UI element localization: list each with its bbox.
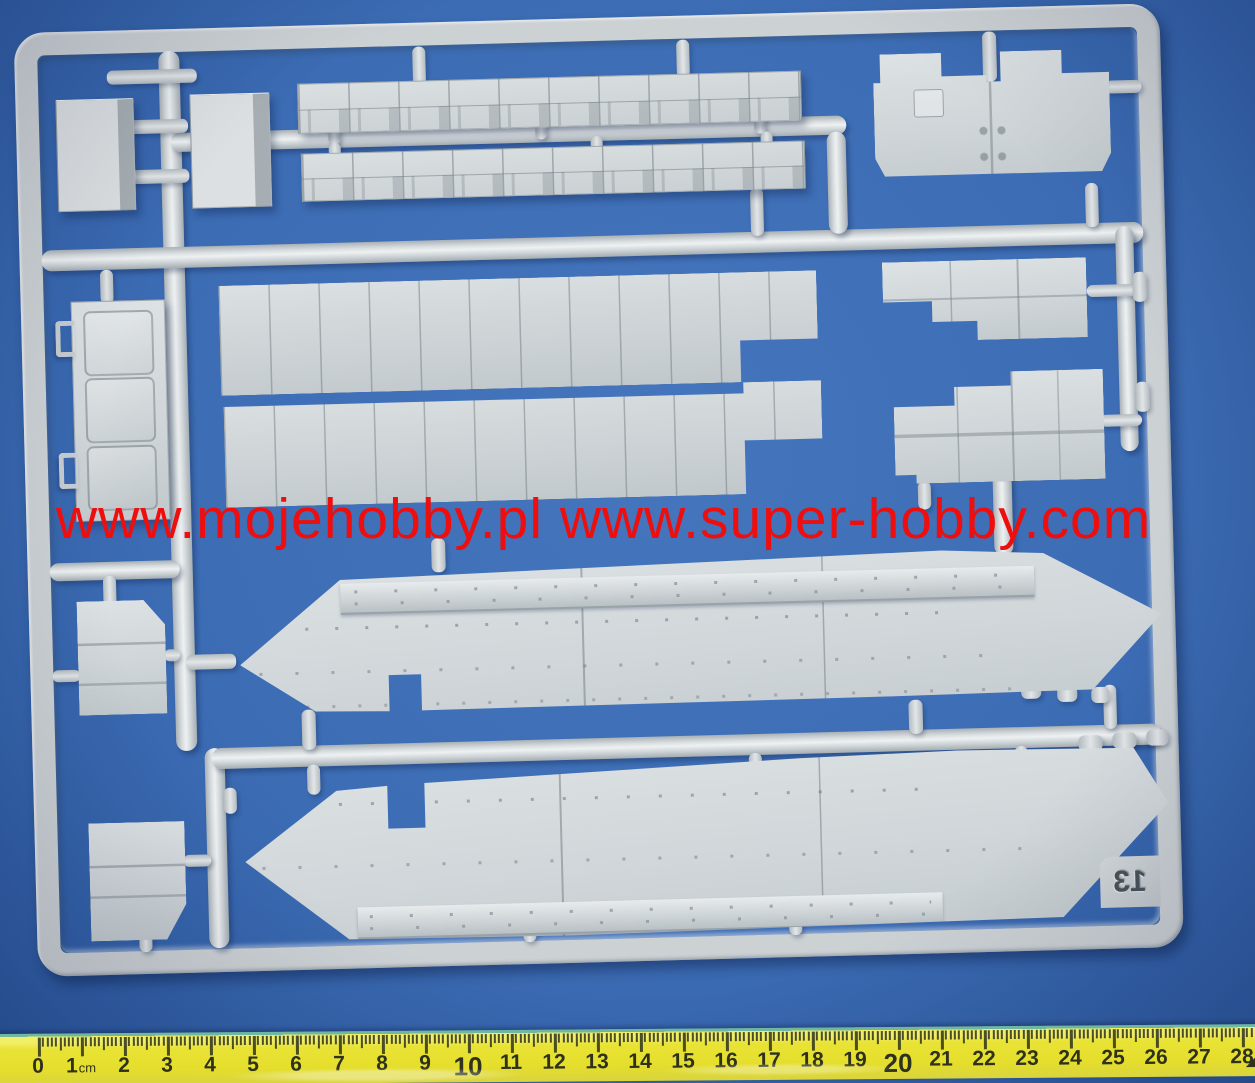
ruler-tick <box>455 1034 457 1043</box>
ruler-tick <box>881 1031 883 1040</box>
ruler-tick <box>55 1038 57 1047</box>
ruler-tick <box>657 1033 659 1042</box>
ruler-tick <box>352 1035 354 1044</box>
ruler-tick <box>429 1035 431 1044</box>
ruler-tick <box>571 1033 573 1042</box>
ruler-tick <box>395 1035 397 1044</box>
ruler-tick <box>1018 1030 1020 1039</box>
ruler-tick <box>541 1034 543 1043</box>
ruler-tick <box>46 1038 48 1047</box>
ruler-number: 18 <box>800 1048 824 1072</box>
ruler-tick <box>1074 1030 1076 1039</box>
ruler-tick <box>842 1031 844 1040</box>
ruler-tick <box>1031 1030 1033 1039</box>
ruler-tick <box>249 1036 251 1045</box>
frame-tab <box>1135 382 1150 412</box>
ruler-tick <box>919 1031 921 1044</box>
ruler-tick <box>850 1031 852 1040</box>
ruler-tick <box>180 1037 182 1046</box>
ruler-tick <box>107 1037 109 1046</box>
ruler-tick <box>283 1036 285 1045</box>
ruler-tick <box>1143 1029 1145 1038</box>
ruler-tick <box>408 1035 410 1044</box>
ruler-number: 24 <box>1058 1046 1082 1070</box>
ruler-number: 9 <box>419 1052 431 1076</box>
ruler-tick <box>700 1032 702 1041</box>
ruler-tick <box>270 1036 272 1045</box>
ruler-tick <box>605 1033 607 1042</box>
ruler-tick <box>102 1037 104 1050</box>
ruler-tick <box>911 1031 913 1040</box>
ruler-tick <box>838 1031 840 1040</box>
ruler-tick <box>343 1035 345 1044</box>
ruler-number: 3 <box>161 1054 173 1078</box>
gate-stub <box>1105 80 1141 94</box>
ruler-tick <box>1147 1029 1149 1038</box>
ruler-tick <box>317 1035 319 1048</box>
ruler-tick <box>1186 1029 1188 1038</box>
ruler-tick <box>734 1032 736 1041</box>
ruler-tick <box>1207 1028 1209 1037</box>
ruler-tick <box>1048 1030 1050 1043</box>
ruler-tick <box>438 1035 440 1044</box>
ruler-tick <box>412 1035 414 1044</box>
ruler-tick <box>1177 1029 1179 1042</box>
ruler-tick <box>1216 1028 1218 1037</box>
ruler-tick <box>386 1035 388 1044</box>
ruler-tick <box>773 1032 775 1041</box>
ruler-tick <box>524 1034 526 1043</box>
ruler-tick <box>588 1033 590 1042</box>
product-photo: 13 www.mojehobby.pl www.super-hobby.com … <box>0 0 1255 1083</box>
ruler-number: 13 <box>585 1050 609 1074</box>
bracket-handle <box>59 453 79 489</box>
ruler-tick <box>670 1033 672 1042</box>
ruler-tick <box>730 1032 732 1041</box>
ruler-tick <box>1182 1029 1184 1038</box>
ruler-tick <box>889 1031 891 1040</box>
hull-tab <box>1112 732 1136 749</box>
ruler-tick <box>1040 1030 1042 1039</box>
ruler-tick <box>94 1037 96 1046</box>
ruler-tick <box>390 1035 392 1044</box>
ruler-tick <box>696 1032 698 1041</box>
gate-stub <box>183 854 211 867</box>
cross-connector <box>107 68 197 84</box>
ruler-tick <box>1212 1028 1214 1037</box>
ruler-tick <box>154 1037 156 1046</box>
ruler-tick <box>1121 1029 1123 1038</box>
ruler-tick <box>476 1034 478 1043</box>
ruler-tick <box>743 1032 745 1041</box>
gate-stub <box>164 649 180 661</box>
ruler-tick <box>979 1030 981 1039</box>
ruler-tick <box>644 1033 646 1042</box>
ruler-tick <box>807 1032 809 1041</box>
ruler-number: 11 <box>500 1051 522 1075</box>
gate-stub <box>908 700 923 734</box>
ruler-tick <box>537 1034 539 1043</box>
ruler-tick <box>1035 1030 1037 1039</box>
ruler-tick <box>747 1032 749 1045</box>
ruler-tick <box>584 1033 586 1042</box>
ruler-tick <box>442 1034 444 1043</box>
ruler-tick <box>674 1033 676 1042</box>
ruler-tick <box>51 1038 53 1047</box>
ruler-tick <box>214 1036 216 1045</box>
small-box-part-a <box>55 98 136 212</box>
ruler-tick <box>764 1032 766 1041</box>
ruler-tick <box>816 1032 818 1041</box>
ruler-tick <box>846 1031 848 1040</box>
ruler-tick <box>188 1036 190 1049</box>
ruler-tick <box>1233 1028 1235 1037</box>
ruler-tick <box>145 1037 147 1050</box>
small-plate-mid-left <box>76 599 167 715</box>
ruler-number: 22 <box>972 1047 996 1071</box>
ruler-tick <box>120 1037 122 1046</box>
ruler-tick <box>1169 1029 1171 1038</box>
ruler-tick <box>309 1036 311 1045</box>
ruler-tick <box>261 1036 263 1045</box>
sprue-number-mirrored: 13 <box>1113 864 1147 899</box>
ruler-tick <box>485 1034 487 1043</box>
gate-stub <box>307 764 321 794</box>
ruler-tick <box>223 1036 225 1045</box>
ruler-tick <box>1104 1029 1106 1038</box>
gate-stub <box>676 40 690 78</box>
ruler-tick <box>231 1036 233 1049</box>
ruler-tick <box>1044 1030 1046 1039</box>
ruler-tick <box>244 1036 246 1045</box>
gate-stub <box>1085 183 1099 227</box>
gate-stub <box>1100 414 1142 427</box>
ruler-tick <box>876 1031 878 1044</box>
ruler-tick <box>1108 1029 1110 1038</box>
ruler-tick <box>446 1034 448 1047</box>
ruler-tick <box>618 1033 620 1046</box>
ruler-tick <box>825 1031 827 1040</box>
ruler-end-marker: ◢ <box>1246 1050 1255 1070</box>
ruler-tick <box>760 1032 762 1041</box>
ruler-tick <box>653 1033 655 1042</box>
ruler-number: 23 <box>1015 1047 1039 1071</box>
ruler-tick <box>803 1032 805 1041</box>
small-box-part-b <box>189 93 272 209</box>
ruler-tick <box>227 1036 229 1045</box>
ruler-tick <box>240 1036 242 1045</box>
ruler-tick <box>928 1031 930 1040</box>
ruler-tick <box>128 1037 130 1046</box>
ruler-tick <box>266 1036 268 1045</box>
ruler-tick <box>502 1034 504 1043</box>
ruler-tick <box>489 1034 491 1047</box>
ruler-tick <box>85 1037 87 1046</box>
ruler-tick <box>326 1035 328 1044</box>
ruler-number: 1cm <box>66 1054 96 1078</box>
ruler-tick <box>218 1036 220 1045</box>
ruler-tick <box>988 1030 990 1039</box>
ruler-tick <box>795 1032 797 1041</box>
ruler-tick <box>661 1033 663 1046</box>
ruler-number: 4 <box>204 1053 216 1077</box>
ruler-tick <box>1096 1029 1098 1038</box>
ruler-tick <box>924 1031 926 1040</box>
ruler-tick <box>292 1036 294 1045</box>
ruler-tick <box>967 1030 969 1039</box>
ruler-tick <box>365 1035 367 1044</box>
ruler-tick <box>459 1034 461 1043</box>
ruler-tick <box>833 1031 835 1044</box>
ruler-number: 27 <box>1187 1045 1211 1069</box>
ruler-tick <box>193 1036 195 1045</box>
ruler-number: 6 <box>290 1053 302 1077</box>
ruler-tick <box>171 1037 173 1046</box>
ruler-tick <box>1164 1029 1166 1038</box>
ruler-tick <box>601 1033 603 1042</box>
ruler-number: 26 <box>1144 1046 1168 1070</box>
bracket-handle <box>55 321 75 357</box>
ruler-tick <box>906 1031 908 1040</box>
ruler-tick <box>756 1032 758 1041</box>
ruler-tick <box>197 1036 199 1045</box>
ruler-tick <box>1083 1029 1085 1038</box>
ruler-tick <box>580 1033 582 1042</box>
ruler-number: 0 <box>32 1055 44 1079</box>
ruler-tick <box>1237 1028 1239 1037</box>
ruler-tick <box>872 1031 874 1040</box>
ruler-tick <box>962 1030 964 1043</box>
ruler-tick <box>1087 1029 1089 1038</box>
ruler-tick <box>575 1033 577 1046</box>
ruler-tick <box>137 1037 139 1046</box>
ruler-tick <box>279 1036 281 1045</box>
runner-tab <box>223 788 237 814</box>
gate-stub <box>301 710 316 750</box>
ruler-tick <box>421 1035 423 1044</box>
ruler-tick <box>347 1035 349 1044</box>
ruler-tick <box>713 1032 715 1041</box>
ruler-tick <box>1061 1030 1063 1039</box>
ruler-tick <box>1078 1029 1080 1038</box>
large-deck-panel-1 <box>218 270 819 396</box>
ruler-tick <box>863 1031 865 1040</box>
gate-stub <box>750 188 764 236</box>
ruler-tick <box>958 1030 960 1039</box>
ruler-tick <box>506 1034 508 1043</box>
ruler-tick <box>287 1036 289 1045</box>
rear-plate-hatch-detail <box>913 89 944 118</box>
ruler-tick <box>1117 1029 1119 1038</box>
ruler-tick <box>868 1031 870 1040</box>
ruler-tick <box>111 1037 113 1046</box>
ruler-tick <box>932 1031 934 1040</box>
ruler-tick <box>936 1031 938 1040</box>
ruler-tick <box>72 1037 74 1046</box>
ruler-tick <box>378 1035 380 1044</box>
ruler-tick <box>158 1037 160 1046</box>
ruler-tick <box>1160 1029 1162 1038</box>
ruler-tick <box>592 1033 594 1042</box>
ruler-tick <box>678 1033 680 1042</box>
ruler-tick <box>42 1038 44 1047</box>
ruler-tick <box>627 1033 629 1042</box>
ruler-tick <box>1134 1029 1136 1042</box>
ruler-tick <box>1057 1030 1059 1039</box>
ruler-tick <box>1173 1029 1175 1038</box>
ruler-tick <box>1203 1029 1205 1038</box>
ruler-tick <box>1194 1029 1196 1038</box>
ruler-tick <box>481 1034 483 1043</box>
ruler-tick <box>549 1034 551 1043</box>
ruler-tick <box>335 1035 337 1044</box>
ruler-number: 10 <box>453 1051 482 1082</box>
ruler-tick <box>304 1036 306 1045</box>
ruler-tick <box>893 1031 895 1040</box>
ruler-number: 21 <box>929 1047 953 1071</box>
ruler-tick <box>433 1035 435 1044</box>
ruler-number: 17 <box>757 1049 781 1073</box>
ruler-tick <box>451 1034 453 1043</box>
ruler-tick <box>704 1032 706 1045</box>
ruler-tick <box>631 1033 633 1042</box>
ruler-tick <box>115 1037 117 1046</box>
ruler-number: 12 <box>542 1051 566 1075</box>
ruler-tick <box>1225 1028 1227 1037</box>
ruler-tick <box>68 1037 70 1046</box>
ruler-tick <box>1250 1028 1252 1037</box>
ruler-tick <box>322 1035 324 1044</box>
ruler-tick <box>1126 1029 1128 1038</box>
ruler-tick <box>150 1037 152 1046</box>
gate-stub <box>100 270 114 304</box>
ruler-tick <box>59 1037 61 1050</box>
ruler-tick <box>98 1037 100 1046</box>
ruler-tick <box>77 1037 79 1046</box>
ruler-tick <box>360 1035 362 1048</box>
ruler-number: 8 <box>376 1052 388 1076</box>
ruler-tick <box>519 1034 521 1043</box>
ruler-tick <box>739 1032 741 1041</box>
ruler-tick <box>997 1030 999 1039</box>
ruler-tick <box>274 1036 276 1049</box>
ruler-tick <box>1246 1028 1248 1037</box>
ruler-tick <box>915 1031 917 1040</box>
ruler-tick <box>721 1032 723 1041</box>
ruler-tick <box>464 1034 466 1043</box>
ruler-tick <box>567 1034 569 1043</box>
ruler-tick <box>820 1032 822 1041</box>
ruler-tick <box>829 1031 831 1040</box>
frame-tab <box>1132 272 1147 302</box>
ruler-tick <box>1100 1029 1102 1038</box>
ruler-tick <box>885 1031 887 1040</box>
watermark-text: www.mojehobby.pl www.super-hobby.com <box>56 486 1226 552</box>
ruler-tick <box>610 1033 612 1042</box>
ruler-tick <box>691 1033 693 1042</box>
ruler-tick <box>1220 1028 1222 1041</box>
hatch-panel <box>85 377 157 444</box>
ruler-tick <box>666 1033 668 1042</box>
ruler-tick <box>687 1033 689 1042</box>
ruler-tick <box>1065 1030 1067 1039</box>
runner-vertical-strips-right <box>826 131 848 233</box>
ruler-number: 2 <box>118 1054 130 1078</box>
ruler-tick <box>373 1035 375 1044</box>
ruler-number: 16 <box>714 1049 738 1073</box>
ruler-tick <box>472 1034 474 1043</box>
ruler-tick <box>799 1032 801 1041</box>
ruler-tick <box>141 1037 143 1046</box>
ruler-tick <box>532 1034 534 1047</box>
ruler-tick <box>175 1037 177 1046</box>
ruler-tick <box>403 1035 405 1048</box>
ruler-tick <box>89 1037 91 1046</box>
ruler-tick <box>545 1034 547 1043</box>
ruler-tick <box>163 1037 165 1046</box>
ruler-tick <box>1091 1029 1093 1042</box>
ruler-number: 14 <box>628 1050 652 1074</box>
ruler-tick <box>1014 1030 1016 1039</box>
ruler-tick <box>132 1037 134 1046</box>
ruler-tick <box>1229 1028 1231 1037</box>
ruler-tick <box>399 1035 401 1044</box>
ruler-tick <box>902 1031 904 1040</box>
ruler-tick <box>717 1032 719 1041</box>
ruler-tick <box>558 1034 560 1043</box>
ruler-tick <box>236 1036 238 1045</box>
ruler-tick <box>945 1031 947 1040</box>
ruler-tick <box>330 1035 332 1044</box>
ruler-tick <box>1053 1030 1055 1039</box>
ruler-tick <box>954 1030 956 1039</box>
ruler-tick <box>614 1033 616 1042</box>
ruler: 01cm234567891011121314151617181920212223… <box>0 1024 1255 1083</box>
ruler-tick <box>782 1032 784 1041</box>
ruler-tick <box>648 1033 650 1042</box>
small-plate-bottom-left <box>88 821 187 941</box>
ruler-tick <box>992 1030 994 1039</box>
ruler-unit-label: cm <box>79 1060 96 1075</box>
ruler-tick <box>859 1031 861 1040</box>
ruler-tick <box>300 1036 302 1045</box>
ruler-tick <box>257 1036 259 1045</box>
ruler-tick <box>515 1034 517 1043</box>
ruler-tick <box>623 1033 625 1042</box>
gate-stub <box>52 670 80 683</box>
hull-tab <box>1091 687 1109 703</box>
ruler-tick <box>975 1030 977 1039</box>
ruler-tick <box>635 1033 637 1042</box>
gate-stub <box>982 31 997 81</box>
ruler-tick <box>777 1032 779 1041</box>
ruler-tick <box>1139 1029 1141 1038</box>
ruler-tick <box>1010 1030 1012 1039</box>
ruler-tick <box>356 1035 358 1044</box>
ruler-tick <box>949 1030 951 1039</box>
ruler-tick <box>1130 1029 1132 1038</box>
ruler-number: 7 <box>333 1052 345 1076</box>
ruler-tick <box>201 1036 203 1045</box>
ruler-tick <box>1190 1029 1192 1038</box>
ruler-tick <box>562 1034 564 1043</box>
ruler-tick <box>790 1032 792 1045</box>
ruler-tick <box>494 1034 496 1043</box>
ruler-tick <box>709 1032 711 1041</box>
ruler-tick <box>64 1037 66 1046</box>
ruler-tick <box>752 1032 754 1041</box>
ruler-tick <box>1022 1030 1024 1039</box>
